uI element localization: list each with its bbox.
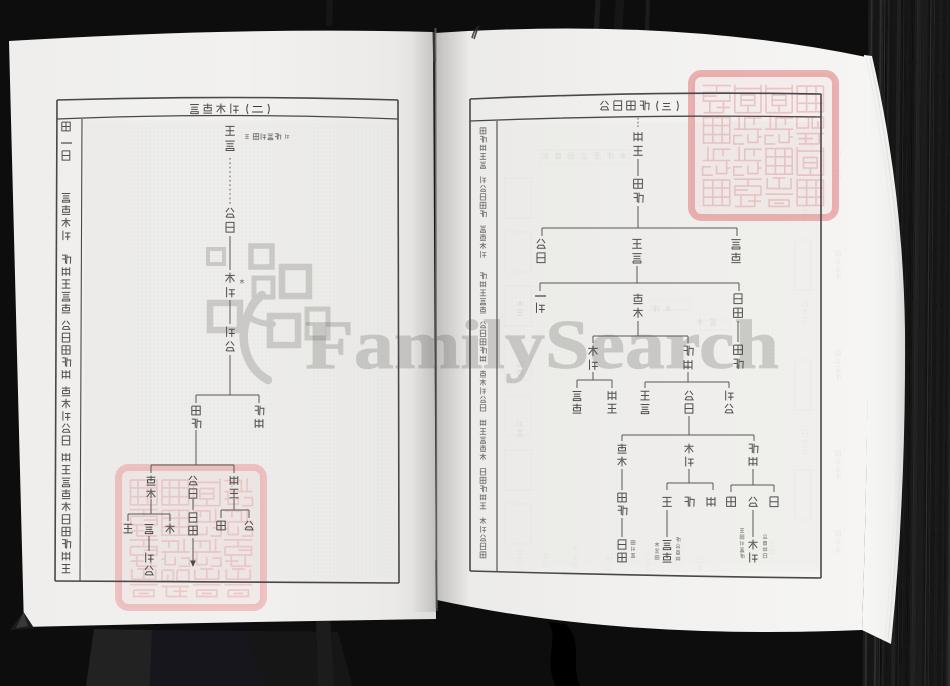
svg-text:FamilySearch: FamilySearch: [305, 307, 779, 384]
